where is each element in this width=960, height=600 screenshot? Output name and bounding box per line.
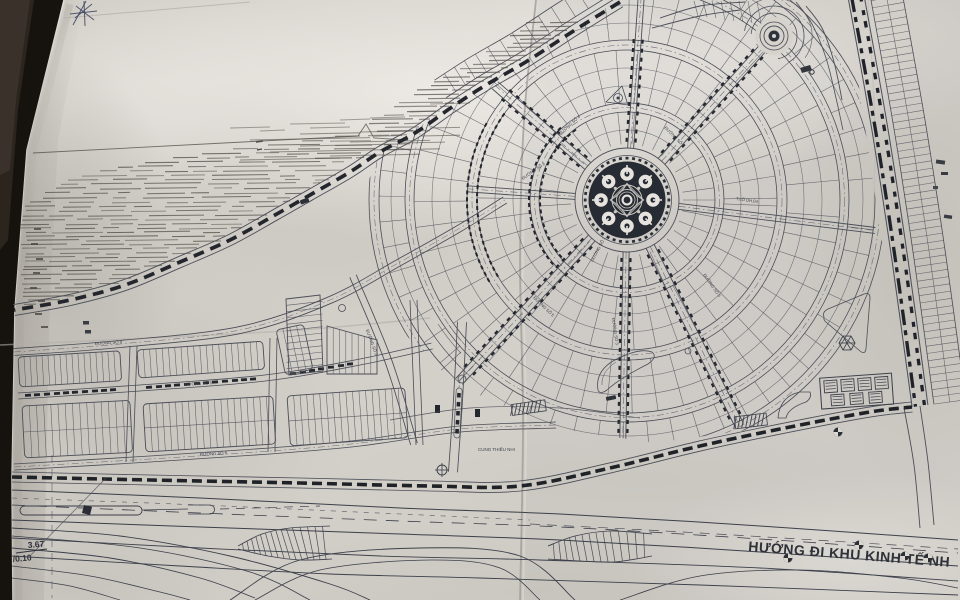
svg-text:/0.10: /0.10 xyxy=(12,552,32,564)
svg-text:CUNG THIẾU NHI: CUNG THIẾU NHI xyxy=(478,446,515,452)
svg-text:3.67: 3.67 xyxy=(27,539,45,550)
